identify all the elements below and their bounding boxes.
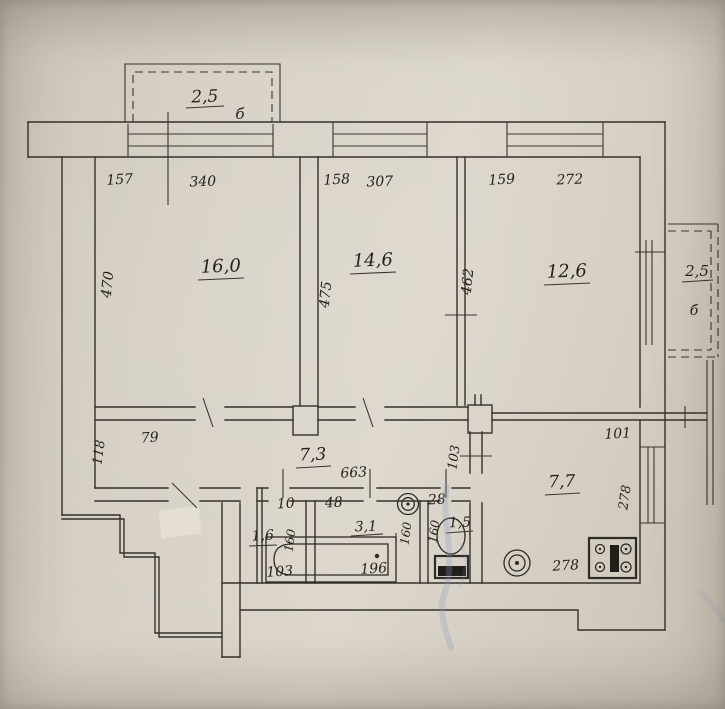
dim-bath-160: 160 — [398, 521, 415, 546]
dim-room1-340: 340 — [189, 174, 216, 191]
balcony-top-area-label: 2,5 — [190, 87, 219, 108]
floor-plan-photo: 2,5 б 157 340 158 307 159 272 470 475 46… — [0, 0, 725, 709]
dim-closet-160: 160 — [282, 528, 299, 553]
ink-smudges — [442, 487, 723, 647]
wc-area-label: 1,5 — [448, 515, 471, 532]
dim-room3-462: 462 — [459, 267, 478, 296]
closet-area-label: 1,6 — [251, 527, 274, 544]
dim-tub-196: 196 — [360, 560, 388, 577]
room3-area-label: 12,6 — [546, 260, 587, 282]
room2-area-label: 14,6 — [352, 249, 393, 271]
dim-room3-159: 159 — [488, 171, 516, 188]
dim-hall-118: 118 — [90, 439, 108, 466]
dim-closet-103: 103 — [266, 563, 294, 580]
dim-room1-157: 157 — [106, 171, 134, 188]
hallway-area-label: 7,3 — [299, 445, 327, 466]
kitchen-sink-icon — [504, 550, 530, 576]
balcony-right-type-label: б — [690, 303, 699, 319]
balcony-right-area-label: 2,5 — [684, 262, 709, 280]
dim-room3-272: 272 — [555, 172, 583, 189]
dim-hall-663: 663 — [340, 464, 368, 481]
exterior-walls — [28, 122, 665, 657]
stove-icon — [589, 538, 636, 578]
dim-bath-48: 48 — [323, 495, 343, 512]
dim-hall-79: 79 — [140, 430, 159, 447]
kitchen-area-label: 7,7 — [548, 472, 576, 493]
bathroom-area-label: 3,1 — [354, 519, 377, 536]
bath-sink-icon — [398, 494, 419, 515]
dim-room2-307: 307 — [366, 174, 393, 191]
dim-kitchen-278-side: 278 — [616, 484, 634, 512]
dim-room1-470: 470 — [99, 270, 118, 299]
balcony-top-type-label: б — [235, 105, 245, 123]
erased-patch — [158, 506, 201, 539]
floor-plan-drawing: 2,5 б 157 340 158 307 159 272 470 475 46… — [0, 0, 725, 709]
dim-room2-475: 475 — [317, 280, 336, 309]
dim-kitchen-101: 101 — [604, 425, 632, 442]
dim-hall-103: 103 — [445, 444, 463, 471]
dim-closet-10: 10 — [276, 496, 295, 513]
kitchen-window — [640, 447, 665, 523]
dim-room2-158: 158 — [323, 171, 351, 188]
dim-wc-160: 160 — [426, 519, 443, 544]
room1-area-label: 16,0 — [200, 255, 241, 277]
dim-kitchen-278-bottom: 278 — [551, 557, 580, 574]
